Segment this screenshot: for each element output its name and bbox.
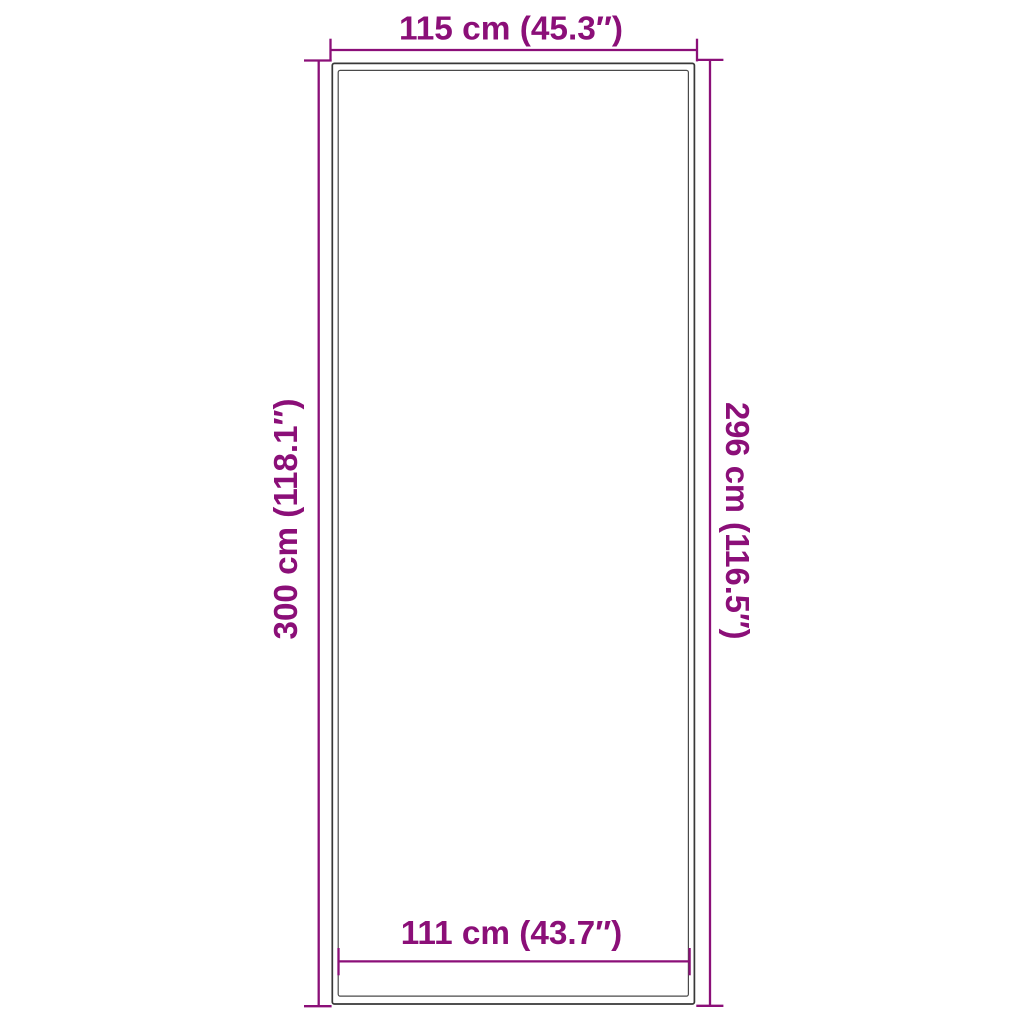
svg-text:300 cm (118.1″): 300 cm (118.1″) <box>267 399 304 640</box>
svg-text:115 cm (45.3″): 115 cm (45.3″) <box>399 9 623 46</box>
svg-text:296 cm (116.5″): 296 cm (116.5″) <box>719 402 756 640</box>
svg-text:111 cm (43.7″): 111 cm (43.7″) <box>401 914 623 951</box>
